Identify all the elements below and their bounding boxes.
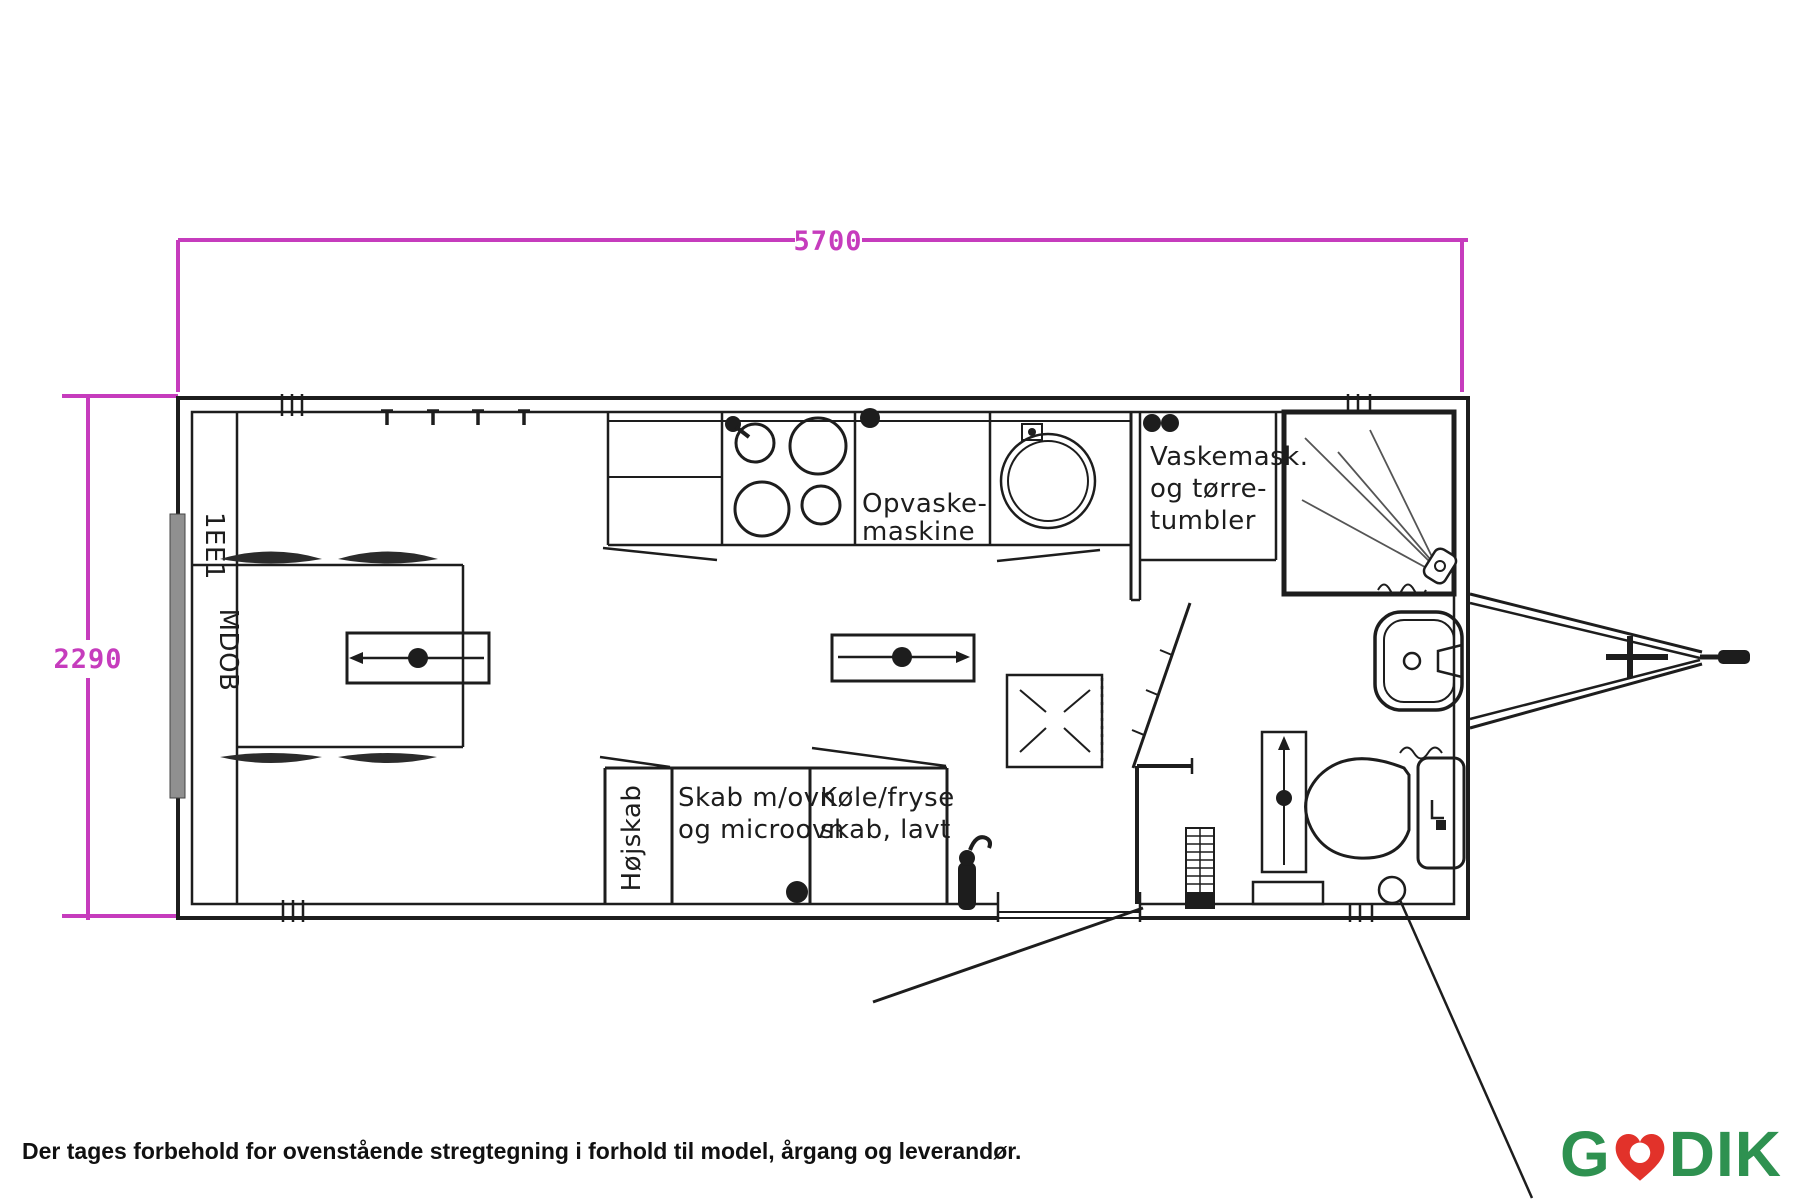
step-box bbox=[1253, 882, 1323, 904]
cabinet-dot bbox=[786, 881, 808, 903]
hitch-coupler bbox=[1718, 650, 1750, 664]
gas-fixture bbox=[958, 837, 990, 910]
svg-text:skab, lavt: skab, lavt bbox=[820, 815, 951, 845]
bathroom-sink bbox=[1375, 612, 1462, 710]
logo-prefix: G bbox=[1560, 1122, 1611, 1186]
kitchen-sink bbox=[1001, 424, 1095, 528]
disclaimer-text: Der tages forbehold for ovenstående stre… bbox=[22, 1138, 1422, 1165]
heater-base bbox=[1186, 892, 1214, 908]
cabinet-arrow-head bbox=[1278, 736, 1290, 750]
entry-door-swing bbox=[873, 908, 1143, 1002]
godik-logo: G DIK bbox=[1560, 1122, 1782, 1186]
window-note-text: 1EE1 bbox=[199, 512, 229, 580]
svg-text:Køle/fryse: Køle/fryse bbox=[820, 783, 955, 813]
cabinet-knob bbox=[1276, 790, 1292, 806]
svg-text:Skab m/ovn: Skab m/ovn bbox=[678, 783, 837, 813]
tall-cabinet-label: Højskab bbox=[617, 785, 647, 892]
svg-text:Opvaske-: Opvaske- bbox=[862, 489, 987, 519]
dishwasher-label: Opvaske- maskine bbox=[862, 489, 987, 547]
top-dimension-label: 5700 bbox=[793, 226, 862, 257]
dryer-tap-dot bbox=[1161, 414, 1179, 432]
floor-plan-drawing: 5700 2290 1EE1 MDOB bbox=[0, 0, 1800, 1200]
logo-suffix: DIK bbox=[1669, 1122, 1782, 1186]
floor-drain bbox=[1379, 877, 1405, 903]
bed-table-arrow bbox=[349, 652, 363, 664]
shower-cabin bbox=[1284, 412, 1459, 596]
left-dimension-label: 2290 bbox=[53, 644, 122, 675]
counter-tap-dot bbox=[860, 408, 880, 428]
center-table-knob bbox=[892, 647, 912, 667]
svg-text:og tørre-: og tørre- bbox=[1150, 474, 1267, 504]
cooktop bbox=[735, 418, 846, 536]
top-dimension bbox=[178, 240, 1468, 392]
left-window bbox=[170, 514, 185, 798]
washer-tap-dot bbox=[1143, 414, 1161, 432]
floor-plan-page: 5700 2290 1EE1 MDOB bbox=[0, 0, 1800, 1200]
bathroom-door-swing bbox=[1132, 603, 1190, 768]
toilet-flush-button bbox=[1436, 820, 1446, 830]
toilet bbox=[1306, 748, 1464, 869]
center-table-arrow bbox=[956, 651, 970, 663]
bed-side-text: MDOB bbox=[213, 609, 243, 692]
drain-square bbox=[1007, 675, 1102, 767]
svg-text:maskine: maskine bbox=[862, 517, 975, 547]
trailer-hitch bbox=[1470, 594, 1750, 728]
bed-table-knob bbox=[408, 648, 428, 668]
fridge-cabinet-label: Køle/fryse skab, lavt bbox=[820, 783, 955, 845]
sink-drain bbox=[1404, 653, 1420, 669]
kitchen-sink-tap bbox=[1028, 428, 1036, 436]
heart-icon bbox=[1612, 1128, 1668, 1184]
entry-partition bbox=[1137, 758, 1192, 904]
svg-text:tumbler: tumbler bbox=[1150, 506, 1256, 536]
